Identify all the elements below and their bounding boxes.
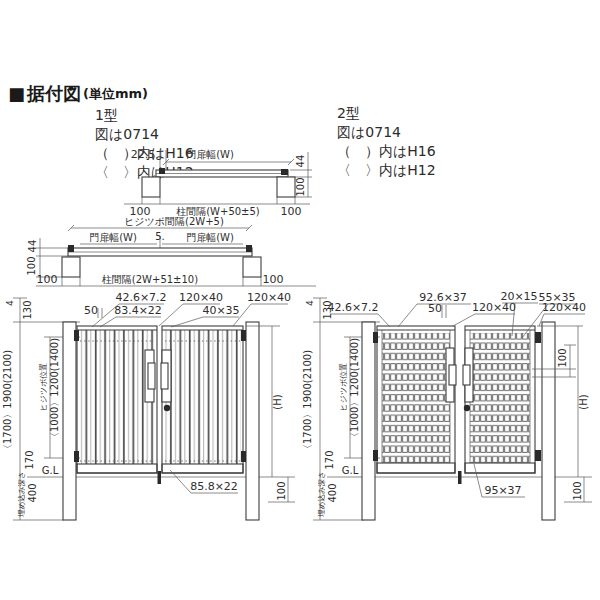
elev2-right-rails (470, 333, 530, 464)
elev2-embed-depth: 400 (327, 483, 338, 502)
plan-double-hinge-mark-left (68, 245, 74, 252)
elev2-post-left (362, 322, 375, 520)
elev2-dim-total-height: 〈1700〉1900(2100) (302, 350, 313, 454)
elev1-pitch-label: 50 (84, 304, 98, 317)
dim-post-left: 100 (37, 273, 58, 286)
plan-single-latch-mark-right (281, 169, 288, 175)
elev1-hinge-pos-value: 〈1000〉1200(1400) (49, 338, 60, 442)
elev1-ground-line-label: G.L (42, 465, 59, 476)
elev1-right-bottom-rail (162, 464, 243, 473)
elev1-bottom-rail-section: 85.8×22 (190, 480, 238, 493)
elev1-dim-total-height: 〈1700〉1900(2100) (2, 350, 13, 454)
elev2-rail-section: 92.6×37 (419, 291, 467, 304)
type2-model: 2型 (337, 104, 436, 123)
elev2-bottom-rail-section: 95×37 (484, 484, 521, 497)
elev2-gate-leaf-right (465, 326, 535, 473)
label-leaf-width-right: 門扉幅(W) (186, 232, 234, 243)
installation-drawing-page: ■ 据付図 (単位mm) 1型 図は0714 （ ）内はH16 〈 〉内はH12… (0, 0, 600, 600)
label-leaf-width-left: 門扉幅(W) (89, 232, 137, 243)
dim-center-gap: 5. (155, 231, 165, 242)
elev1-gate-leaf-right (162, 326, 243, 473)
elev2-left-bottom-rail (377, 463, 455, 473)
elev2-height-label: (H) (578, 394, 589, 409)
elev2-handle-left-grip (449, 365, 456, 385)
elevation-type1: 4 130 〈1700〉1900(2100) ヒジツボ位置 〈1000〉1200… (0, 290, 315, 540)
plan-view-single: 22.5 門扉幅(W) 44 100 100 柱間隔(W+50±5) 100 (80, 142, 320, 222)
elev1-top-rail-section: 120×40 (179, 291, 223, 304)
dim-post-depth: 100 (26, 256, 37, 275)
elev1-dim-4: 4 (5, 300, 15, 306)
elev1-dim-100-right: 100 (276, 481, 287, 500)
elev1-handle-left-grip (148, 363, 155, 389)
label-post-spacing: 柱間隔(2W+51±10) (102, 274, 198, 285)
elev2-frame-section: 42.6×7.2 (327, 301, 378, 314)
elev1-dim-170: 170 (24, 450, 35, 469)
elev2-dim-100-right: 100 (572, 481, 583, 500)
elev1-post-left (63, 322, 76, 520)
elev1-dim-130: 130 (22, 300, 33, 319)
elev2-dim-4: 4 (305, 300, 315, 306)
elev1-slat-section: 42.6×7.2 (115, 291, 166, 304)
elev2-handle-right-grip (463, 365, 470, 385)
elev1-drop-bolt (158, 471, 162, 484)
dim-leaf-depth: 44 (27, 240, 38, 253)
elev1-left-slats (79, 330, 155, 464)
elev2-left-rails (382, 333, 450, 464)
elev2-post-right (542, 322, 555, 520)
plan-single-hinge-mark-left (159, 168, 165, 174)
elev1-embed-label: 埋め込み深さ (17, 471, 26, 518)
dim-post-right: 100 (263, 273, 284, 286)
label-hinge-spacing: ヒジツボ間隔(2W+5) (124, 216, 224, 227)
elev2-rail-pitch: 100 (557, 348, 568, 367)
elev1-lock (164, 405, 170, 411)
elev1-post-right (246, 322, 259, 520)
elev2-lock (464, 405, 470, 411)
elev2-hinge-pos-label: ヒジツボ位置 (339, 363, 348, 412)
elev2-drop-bolt (458, 471, 462, 484)
elev1-left-bottom-rail (77, 464, 157, 473)
elev1-right-slats (164, 330, 241, 464)
plan-double-post-left (62, 257, 80, 277)
plan-view-double: ヒジツボ間隔(2W+5) 門扉幅(W) 5. 門扉幅(W) 44 100 100… (28, 212, 323, 294)
plan-single-post-left (142, 177, 160, 197)
type1-model: 1型 (95, 106, 194, 125)
dim-hinge-offset: 22.5 (131, 148, 156, 161)
elev2-embed-label: 埋め込み深さ (317, 471, 326, 518)
elev1-stile-section: 40×35 (202, 304, 239, 317)
elev1-height-label: (H) (272, 394, 283, 409)
dim-leaf-depth: 44 (295, 155, 306, 168)
elev2-top-rail-right-section: 120×40 (542, 301, 586, 314)
elev1-top-rail-right-section: 120×40 (247, 291, 291, 304)
elevation-type2: 4 130 〈1700〉1900(2100) ヒジツボ位置 〈1000〉1200… (300, 290, 600, 540)
title-square-marker: ■ (8, 85, 25, 103)
dim-post-depth: 100 (295, 177, 306, 196)
elev2-gate-leaf-left (377, 326, 455, 473)
plan-double-post-right (243, 257, 261, 277)
title-unit: (単位mm) (83, 85, 148, 103)
elev1-handle-right-grip (161, 363, 168, 389)
elev2-hole-section: 20×15 (500, 290, 537, 303)
label-leaf-width: 門扉幅(W) (186, 149, 234, 160)
elev2-hinge-pos-value: 〈1000〉1200(1400) (349, 338, 360, 442)
type2-notes: 2型 図は0714 （ ）内はH16 〈 〉内はH12 (337, 104, 436, 180)
elev1-wide-slat-section: 83.4×22 (114, 304, 162, 317)
elev2-ground-line-label: G.L (342, 465, 359, 476)
title-text: 据付図 (27, 82, 81, 106)
type2-figure-note: 図は0714 (337, 123, 436, 142)
type2-h16-note: （ ）内はH16 (337, 142, 436, 161)
elev1-embed-depth: 400 (27, 483, 38, 502)
type2-h12-note: 〈 〉内はH12 (337, 161, 436, 180)
elev2-dim-170: 170 (324, 450, 335, 469)
plan-single-post-right (277, 177, 295, 197)
plan-double-hinge-mark-right (246, 245, 252, 252)
elev2-pitch-label: 50 (428, 302, 442, 315)
elev1-hinge-pos-label: ヒジツボ位置 (39, 363, 48, 412)
page-title: ■ 据付図 (単位mm) (8, 82, 148, 106)
